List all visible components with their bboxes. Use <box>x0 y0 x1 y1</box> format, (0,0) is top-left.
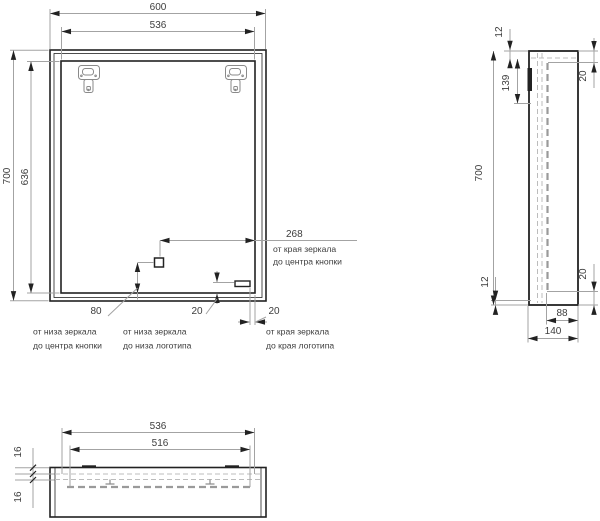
front-width-dim-label: 600 <box>150 2 167 13</box>
side-hidden-lines <box>531 53 576 303</box>
mounting-bracket-right <box>226 66 247 93</box>
side-front-inset-bottom-label: 20 <box>578 268 589 280</box>
side-height-dim-label: 700 <box>474 164 485 181</box>
bottom-hidden-lines <box>55 474 261 487</box>
side-front-inset-top-label: 20 <box>578 70 589 82</box>
bottom-bracket-tab-left <box>82 465 96 467</box>
bottom-inner-width-label: 516 <box>152 438 169 449</box>
front-mirror-height-dim-label: 636 <box>20 168 31 185</box>
mirror-drawing: 600 536 700 636 268 от <box>0 0 600 521</box>
side-view: 700 12 139 20 12 <box>474 26 598 342</box>
side-depth-label: 140 <box>545 326 562 337</box>
bottom-layer-offsets-dim: 16 16 <box>13 446 55 508</box>
side-bracket <box>528 68 533 91</box>
button-edge-note-line1: от края зеркала <box>273 244 336 254</box>
side-top-inset-dim: 12 <box>494 26 510 68</box>
logo-edge-dim-label: 20 <box>268 306 280 317</box>
logo-bottom-note-line1: от низа зеркала <box>123 327 187 337</box>
button-bottom-note-line2: до центра кнопки <box>33 341 102 351</box>
side-height-dim: 700 <box>474 51 494 305</box>
button-bottom-dim: 80 от низа зеркала до центра кнопки <box>33 263 154 351</box>
mounting-bracket-left <box>79 66 100 93</box>
logo-edge-note-line1: от края зеркала <box>266 327 329 337</box>
bottom-offset16-b-label: 16 <box>13 491 24 503</box>
side-bracket-offset-label: 139 <box>501 74 512 91</box>
side-top-inset-label: 12 <box>494 26 505 38</box>
button-edge-note-line2: до центра кнопки <box>273 257 342 267</box>
button-bottom-dim-label: 80 <box>90 306 102 317</box>
button-edge-dim: 268 от края зеркала до центра кнопки <box>160 229 357 267</box>
technical-drawing-sheet: 600 536 700 636 268 от <box>0 0 600 521</box>
side-depth-dim: 140 <box>528 306 578 343</box>
touch-button <box>155 258 164 267</box>
logo-mark <box>235 281 250 287</box>
button-edge-dim-label: 268 <box>286 229 303 240</box>
bottom-mirror-width-label: 536 <box>150 421 167 432</box>
bottom-body-outline <box>50 468 266 518</box>
side-bottom-inset-label: 12 <box>480 276 491 288</box>
side-inner-depth-label: 88 <box>556 308 568 319</box>
logo-bottom-dim: 20 от низа зеркала до низа логотипа <box>123 271 235 351</box>
logo-bottom-note-line2: до низа логотипа <box>123 341 192 351</box>
bottom-view: 536 516 16 16 <box>13 421 266 517</box>
logo-edge-note-line2: до края логотипа <box>266 341 334 351</box>
bottom-offset16-a-label: 16 <box>13 446 24 458</box>
front-mirror-width-dim-label: 536 <box>150 20 167 31</box>
side-bracket-offset-dim: 139 <box>501 59 518 104</box>
front-view: 600 536 700 636 268 от <box>2 2 357 351</box>
side-body-outline <box>529 51 578 305</box>
logo-bottom-dim-label: 20 <box>191 306 203 317</box>
front-mirror-height-dim: 636 <box>20 62 60 294</box>
bottom-bracket-tab-right <box>225 465 239 467</box>
front-height-dim-label: 700 <box>2 167 13 184</box>
button-bottom-note-line1: от низа зеркала <box>33 327 97 337</box>
